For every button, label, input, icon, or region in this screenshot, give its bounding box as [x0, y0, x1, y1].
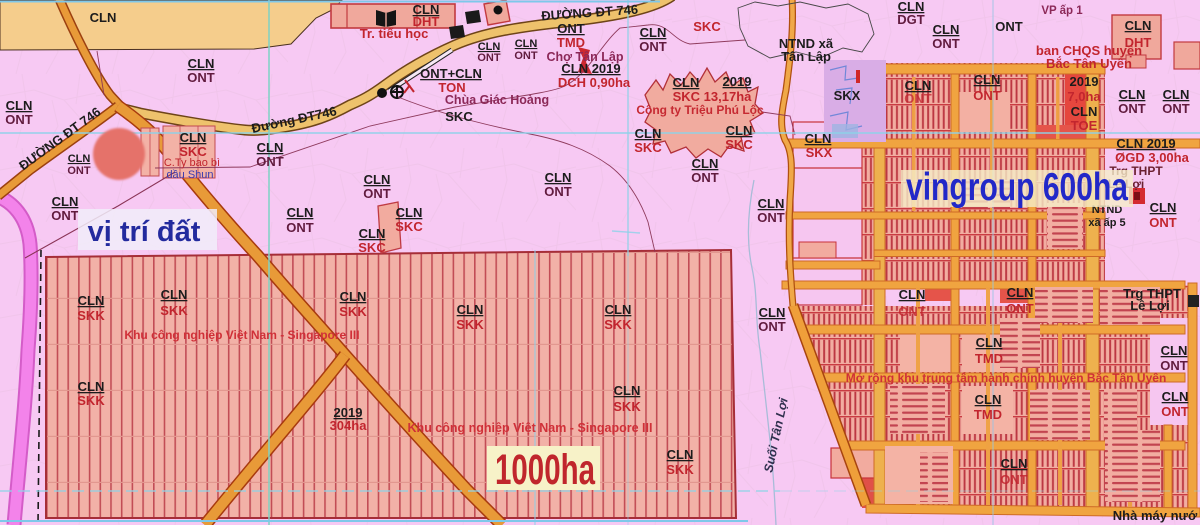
svg-text:DHT: DHT: [1125, 35, 1152, 50]
svg-text:CLN: CLN: [364, 172, 391, 187]
svg-text:SKK: SKK: [339, 304, 367, 319]
svg-text:ONT: ONT: [1162, 101, 1190, 116]
svg-text:SKK: SKK: [666, 462, 694, 477]
svg-text:CLN: CLN: [1150, 200, 1177, 215]
svg-text:ONT: ONT: [286, 220, 314, 235]
svg-text:Khu công nghiệp Việt Nam - Sin: Khu công nghiệp Việt Nam - Singapore III: [124, 328, 359, 342]
svg-text:Khu công nghiệp Việt Nam - Sin: Khu công nghiệp Việt Nam - Singapore III: [408, 421, 653, 435]
svg-text:SKK: SKK: [160, 303, 188, 318]
svg-text:ONT+CLN: ONT+CLN: [420, 66, 482, 81]
svg-text:ONT: ONT: [477, 52, 501, 64]
svg-text:CLN: CLN: [68, 153, 91, 165]
svg-text:Lê Lợi: Lê Lợi: [1130, 298, 1170, 313]
svg-text:CLN: CLN: [287, 205, 314, 220]
svg-text:CLN: CLN: [6, 98, 33, 113]
svg-text:ONT: ONT: [757, 210, 785, 225]
svg-text:VP ấp 1: VP ấp 1: [1041, 5, 1083, 17]
svg-text:ONT: ONT: [187, 70, 215, 85]
svg-text:CLN: CLN: [635, 126, 662, 141]
svg-text:ONT: ONT: [995, 19, 1023, 34]
svg-text:7,0ha: 7,0ha: [1067, 89, 1101, 104]
svg-text:CLN: CLN: [161, 287, 188, 302]
svg-text:SKC 13,17ha: SKC 13,17ha: [673, 89, 753, 104]
svg-text:CLN: CLN: [1162, 389, 1189, 404]
svg-text:CLN: CLN: [975, 392, 1002, 407]
svg-text:TMD: TMD: [974, 407, 1002, 422]
svg-text:CLN: CLN: [52, 194, 79, 209]
svg-text:Tr. tiểu học: Tr. tiểu học: [360, 26, 429, 41]
svg-text:CLN 2019: CLN 2019: [561, 61, 620, 76]
svg-text:CLN: CLN: [673, 75, 700, 90]
svg-text:ONT: ONT: [691, 170, 719, 185]
svg-text:CLN: CLN: [1071, 104, 1098, 119]
svg-text:2019: 2019: [723, 74, 752, 89]
svg-text:SKC: SKC: [395, 219, 423, 234]
svg-text:DCH 0,90ha: DCH 0,90ha: [558, 75, 631, 90]
svg-text:Bắc Tân Uyên: Bắc Tân Uyên: [1046, 56, 1132, 71]
svg-text:SKK: SKK: [613, 399, 641, 414]
svg-text:CLN: CLN: [759, 305, 786, 320]
svg-text:CLN: CLN: [899, 287, 926, 302]
svg-text:SKX: SKX: [834, 88, 861, 103]
svg-text:CLN: CLN: [1007, 285, 1034, 300]
svg-text:CLN: CLN: [78, 379, 105, 394]
svg-text:CLN: CLN: [667, 447, 694, 462]
svg-text:ONT: ONT: [1006, 301, 1034, 316]
svg-text:CLN: CLN: [90, 10, 117, 25]
svg-text:Công ty Triệu Phú Lộc: Công ty Triệu Phú Lộc: [636, 103, 764, 117]
svg-text:CLN: CLN: [396, 205, 423, 220]
svg-text:SKK: SKK: [604, 317, 632, 332]
svg-text:CLN: CLN: [545, 170, 572, 185]
svg-text:ONT: ONT: [932, 36, 960, 51]
svg-text:ØGD 3,00ha: ØGD 3,00ha: [1115, 150, 1189, 165]
svg-text:CLN: CLN: [340, 289, 367, 304]
svg-text:ONT: ONT: [1118, 101, 1146, 116]
svg-text:ONT: ONT: [51, 208, 79, 223]
svg-text:CLN: CLN: [758, 196, 785, 211]
svg-text:Nhà máy nướ: Nhà máy nướ: [1113, 508, 1198, 523]
svg-text:ONT: ONT: [904, 91, 932, 106]
svg-text:CLN: CLN: [1119, 87, 1146, 102]
svg-text:ONT: ONT: [1000, 472, 1028, 487]
svg-text:ONT: ONT: [1161, 404, 1189, 419]
svg-text:ONT: ONT: [758, 319, 786, 334]
svg-text:ONT: ONT: [557, 21, 585, 36]
svg-text:CLN: CLN: [974, 72, 1001, 87]
svg-text:SKC: SKC: [693, 19, 721, 34]
svg-text:Chùa Giác Hoàng: Chùa Giác Hoàng: [445, 93, 549, 107]
svg-text:SKC: SKC: [445, 109, 473, 124]
svg-text:TOE: TOE: [1071, 118, 1098, 133]
svg-text:CLN: CLN: [614, 383, 641, 398]
svg-text:CLN: CLN: [976, 335, 1003, 350]
svg-text:CLN: CLN: [640, 25, 667, 40]
svg-text:DGT: DGT: [897, 12, 925, 27]
svg-text:CLN: CLN: [1125, 18, 1152, 33]
svg-text:CLN: CLN: [359, 226, 386, 241]
svg-text:ONT: ONT: [363, 186, 391, 201]
svg-text:ONT: ONT: [5, 112, 33, 127]
svg-text:ONT: ONT: [67, 165, 91, 177]
svg-text:CLN: CLN: [1163, 87, 1190, 102]
svg-text:CLN 2019: CLN 2019: [1116, 136, 1175, 151]
svg-text:vị trí đất: vị trí đất: [88, 216, 201, 248]
svg-text:ONT: ONT: [256, 154, 284, 169]
svg-text:SKK: SKK: [456, 317, 484, 332]
svg-text:CLN: CLN: [933, 22, 960, 37]
svg-text:CLN: CLN: [257, 140, 284, 155]
svg-text:ONT: ONT: [639, 39, 667, 54]
svg-text:CLN: CLN: [692, 156, 719, 171]
svg-text:C.Ty bao bì: C.Ty bao bì: [164, 157, 220, 169]
svg-text:vingroup 600ha: vingroup 600ha: [906, 166, 1128, 209]
svg-text:SKC: SKC: [725, 137, 753, 152]
svg-text:Mở rộng khu trung tâm hành chí: Mở rộng khu trung tâm hành chính huyện B…: [846, 370, 1167, 385]
svg-text:TMD: TMD: [557, 35, 585, 50]
svg-text:CLN: CLN: [805, 131, 832, 146]
svg-text:CLN: CLN: [457, 302, 484, 317]
svg-text:1000ha: 1000ha: [495, 446, 596, 494]
svg-text:ONT: ONT: [898, 304, 926, 319]
svg-text:SKC: SKC: [634, 140, 662, 155]
svg-text:ONT: ONT: [514, 50, 538, 62]
svg-text:CLN: CLN: [188, 56, 215, 71]
svg-text:CLN: CLN: [605, 302, 632, 317]
svg-text:ONT: ONT: [973, 88, 1001, 103]
svg-text:ONT: ONT: [1149, 215, 1177, 230]
svg-text:dầu Shun: dầu Shun: [166, 169, 213, 181]
svg-text:xã ấp 5: xã ấp 5: [1088, 217, 1125, 229]
svg-text:CLN: CLN: [515, 38, 538, 50]
svg-text:SKC: SKC: [358, 240, 386, 255]
svg-text:SKK: SKK: [77, 308, 105, 323]
svg-text:SKX: SKX: [806, 145, 833, 160]
svg-text:CLN: CLN: [180, 130, 207, 145]
svg-text:CLN: CLN: [78, 293, 105, 308]
svg-text:CLN: CLN: [1161, 343, 1188, 358]
svg-text:TMD: TMD: [975, 351, 1003, 366]
svg-text:SKK: SKK: [77, 393, 105, 408]
svg-text:2019: 2019: [1070, 74, 1099, 89]
svg-text:304ha: 304ha: [330, 418, 368, 433]
svg-text:Tân Lập: Tân Lập: [781, 49, 831, 64]
svg-text:CLN: CLN: [1001, 456, 1028, 471]
svg-text:CLN: CLN: [726, 123, 753, 138]
svg-text:ONT: ONT: [544, 184, 572, 199]
